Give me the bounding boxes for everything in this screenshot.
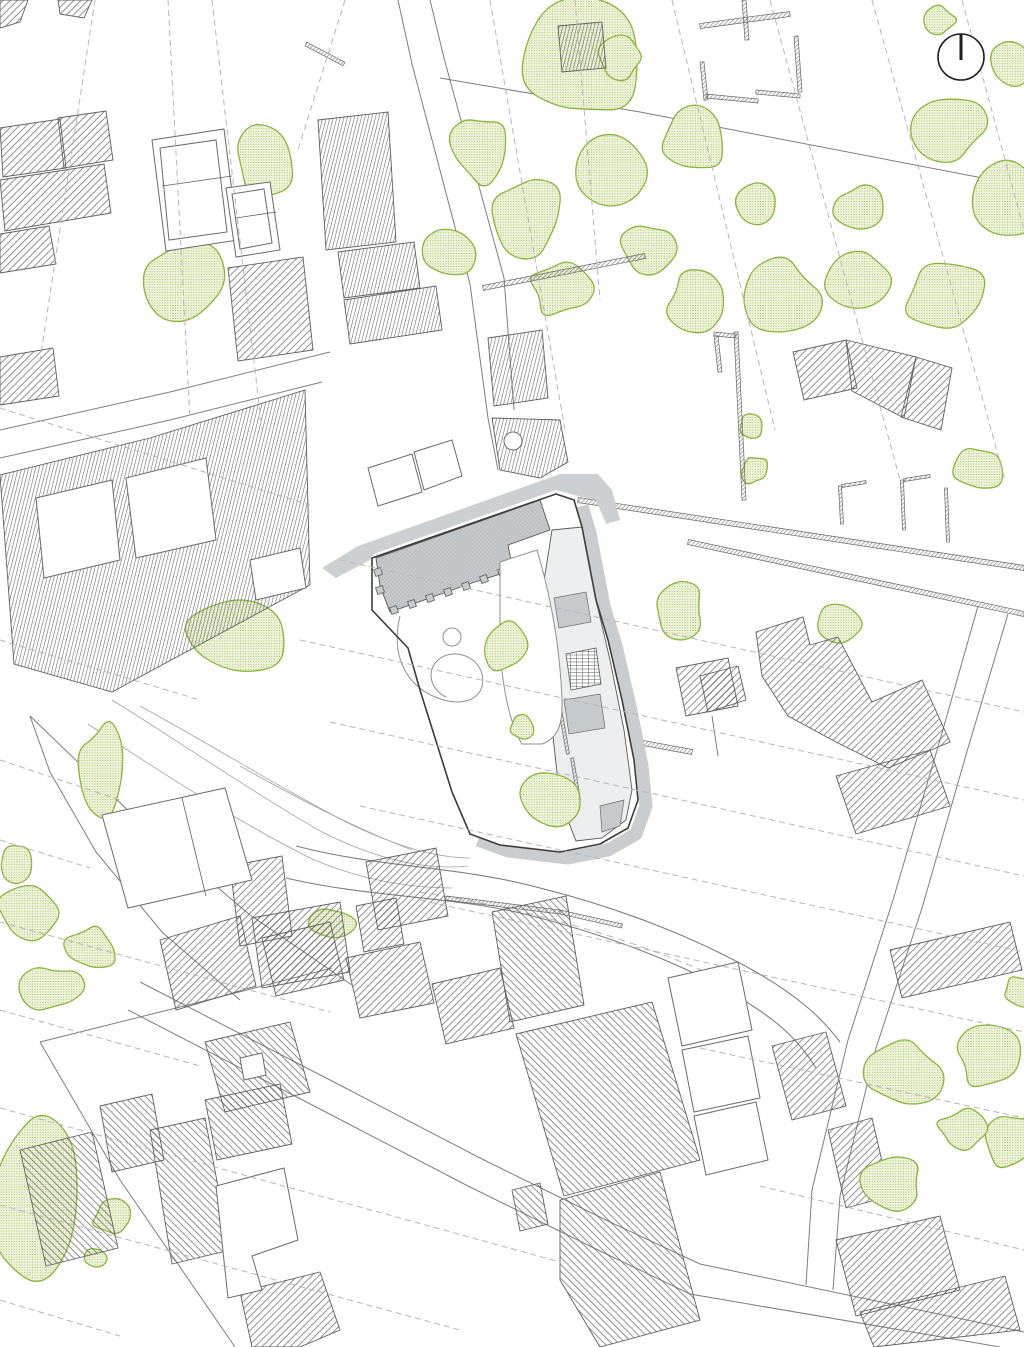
building-hatched bbox=[756, 617, 950, 768]
building-hatched bbox=[356, 898, 404, 952]
building-hatched bbox=[0, 0, 28, 28]
vegetation-blob bbox=[740, 414, 762, 438]
vegetation-blob bbox=[0, 886, 59, 941]
building-outline bbox=[368, 454, 422, 506]
vegetation-blob bbox=[924, 5, 957, 35]
vegetation-blob bbox=[972, 160, 1024, 235]
vegetation-blob bbox=[985, 1117, 1024, 1168]
wall-strip bbox=[842, 481, 866, 488]
building-hatched bbox=[160, 916, 256, 1010]
vegetation-blob bbox=[906, 263, 985, 328]
wall-strip bbox=[756, 90, 800, 98]
building-hatched bbox=[205, 1084, 292, 1160]
site-plan-canvas bbox=[0, 0, 1024, 1347]
vegetation-blob bbox=[1005, 977, 1024, 1007]
terrain-contour-line bbox=[240, 766, 412, 850]
building-hatched bbox=[58, 111, 113, 168]
wall-strip bbox=[794, 36, 802, 92]
building-hatched bbox=[516, 1002, 700, 1196]
building-outline bbox=[102, 788, 252, 908]
building-hatched bbox=[100, 1094, 164, 1172]
vegetation-blob bbox=[449, 120, 505, 186]
building-outline bbox=[216, 1168, 298, 1298]
building-hatched bbox=[772, 1032, 846, 1120]
contour-dashed-line bbox=[360, 806, 1024, 952]
site-stair bbox=[566, 648, 601, 690]
wall-strip bbox=[687, 540, 1024, 617]
building-hatched bbox=[836, 750, 950, 834]
vegetation-blob bbox=[662, 105, 722, 167]
vegetation-blob bbox=[143, 242, 224, 322]
building-outline bbox=[414, 440, 462, 490]
vegetation-blob bbox=[78, 722, 122, 819]
building-hatched bbox=[560, 1172, 700, 1347]
wall-strip bbox=[945, 488, 950, 542]
building-hatched bbox=[228, 257, 313, 361]
building-outline bbox=[682, 1036, 760, 1112]
building-hatched bbox=[0, 226, 56, 273]
vegetation-blob bbox=[833, 185, 883, 229]
vegetation-blob bbox=[825, 251, 892, 308]
wall-strip bbox=[839, 486, 844, 524]
vegetation-blob bbox=[735, 183, 775, 225]
site-room bbox=[554, 592, 591, 628]
vegetation-blob bbox=[667, 270, 724, 333]
vegetation-blob bbox=[620, 226, 677, 275]
building-with-tower bbox=[492, 418, 568, 478]
building-hatched bbox=[676, 658, 738, 716]
contour-dashed-line bbox=[0, 1010, 200, 1066]
wall-strip bbox=[904, 475, 930, 482]
building-inner-wall bbox=[160, 140, 227, 240]
building-hatched bbox=[318, 112, 396, 250]
vegetation-blob bbox=[911, 99, 988, 162]
building-outline bbox=[240, 1053, 266, 1080]
courtyard-void bbox=[36, 480, 120, 578]
vegetation-blob bbox=[937, 1108, 988, 1150]
wall-strip bbox=[901, 480, 906, 530]
project-site-layer bbox=[322, 474, 646, 858]
vegetation-blob bbox=[492, 180, 560, 259]
wall-strip bbox=[706, 94, 758, 103]
wall-strip bbox=[714, 336, 722, 372]
tower-circle bbox=[504, 432, 522, 450]
building-hatched bbox=[346, 942, 434, 1018]
building-hatched bbox=[488, 330, 548, 406]
contour-dashed-line bbox=[770, 0, 900, 480]
vegetation-blob bbox=[953, 449, 1003, 489]
building-hatched bbox=[432, 968, 514, 1044]
building-hatched bbox=[58, 0, 92, 18]
vegetation-blob bbox=[957, 1025, 1020, 1086]
site-room bbox=[564, 694, 605, 734]
site-plan-drawing bbox=[0, 0, 1024, 1347]
building-hatched bbox=[512, 1183, 548, 1231]
building-hatched bbox=[338, 242, 420, 298]
vegetation-blob bbox=[744, 257, 822, 332]
vegetation-blob bbox=[422, 229, 475, 274]
north-arrow-icon bbox=[938, 34, 984, 80]
building-outline bbox=[694, 1102, 768, 1175]
building-hatched bbox=[890, 922, 1022, 998]
wall-strip bbox=[578, 498, 1024, 571]
building-outline bbox=[668, 962, 752, 1046]
vegetation-blob bbox=[576, 135, 648, 206]
building-hatched bbox=[558, 22, 606, 72]
vegetation-blob bbox=[818, 604, 862, 643]
contour-dashed-line bbox=[0, 1300, 120, 1336]
building-hatched bbox=[0, 119, 66, 177]
building-hatched bbox=[0, 348, 59, 405]
vegetation-blob bbox=[1, 846, 31, 884]
vegetation-blob bbox=[19, 968, 85, 1010]
vegetation-blob bbox=[991, 42, 1024, 87]
vegetation-blob bbox=[657, 581, 701, 639]
partition-line bbox=[712, 716, 718, 756]
